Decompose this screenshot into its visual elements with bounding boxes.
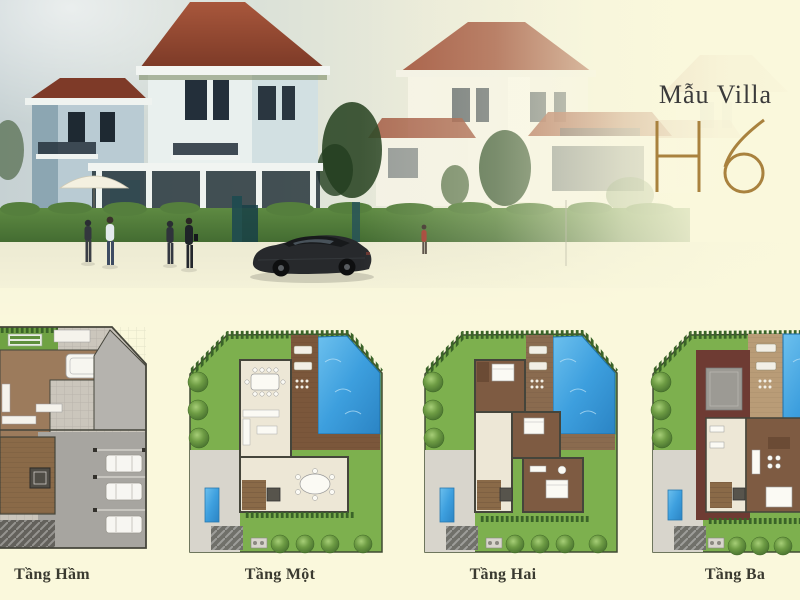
floor-label-second-floor: Tầng Hai bbox=[443, 566, 563, 584]
swimming-pool bbox=[553, 336, 615, 434]
villa-title-block: Mẫu Villa H6 bbox=[652, 80, 772, 196]
floor-plan-second-floor bbox=[420, 322, 625, 557]
parked-cars bbox=[106, 455, 142, 533]
floor-plan-third-floor bbox=[648, 322, 800, 557]
floor-label-first-floor: Tầng Một bbox=[220, 566, 340, 584]
floor-plan-first-floor bbox=[185, 322, 390, 557]
brochure-page: Mẫu Villa H6 bbox=[0, 0, 800, 600]
floor-label-basement: Tầng Hầm bbox=[0, 566, 112, 584]
floor-plan-basement bbox=[0, 322, 148, 555]
swimming-pool bbox=[318, 336, 380, 434]
villa-series-title: Mẫu Villa bbox=[652, 80, 772, 110]
ground-mist bbox=[0, 288, 800, 325]
floor-label-third-floor: Tầng Ba bbox=[675, 566, 795, 584]
model-code-h6-glyph bbox=[652, 118, 772, 196]
